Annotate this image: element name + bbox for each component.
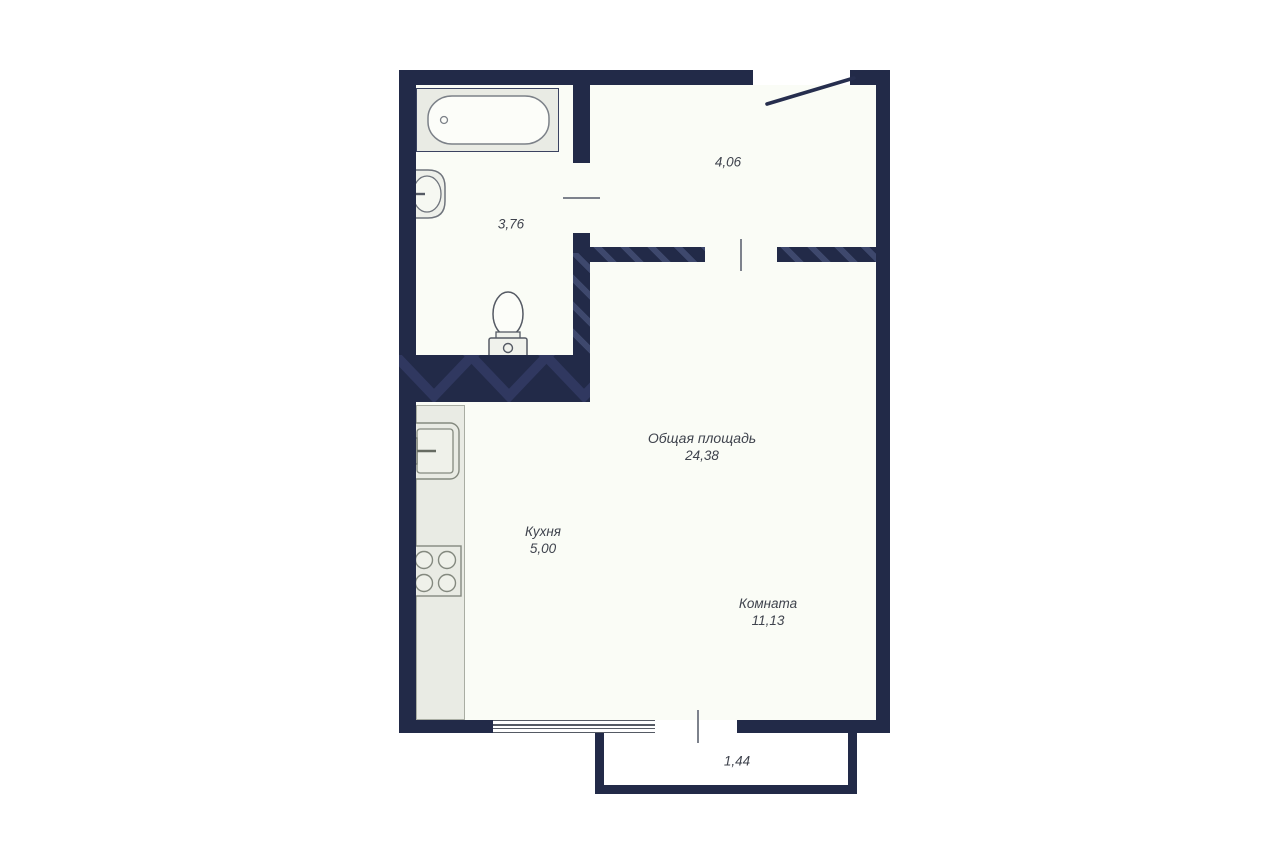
bathroom-door-tick bbox=[563, 197, 600, 199]
total-area-name: Общая площадь bbox=[648, 430, 756, 447]
wall-top bbox=[399, 70, 753, 85]
kitchen-label: Кухня 5,00 bbox=[525, 523, 561, 557]
living-room-area-value: 11,13 bbox=[739, 612, 797, 629]
hallway-area-label: 4,06 bbox=[715, 154, 741, 171]
total-area-value: 24,38 bbox=[648, 447, 756, 464]
wall-bathroom-upper bbox=[573, 85, 590, 163]
total-area-label: Общая площадь 24,38 bbox=[648, 430, 756, 464]
entrance-door-icon bbox=[749, 70, 869, 115]
bathtub-icon bbox=[416, 88, 559, 152]
hall-room-door-tick bbox=[740, 239, 742, 271]
living-room-name: Комната bbox=[739, 595, 797, 612]
kitchen-name: Кухня bbox=[525, 523, 561, 540]
wall-bathroom-mid bbox=[573, 233, 590, 253]
balcony-area-value: 1,44 bbox=[724, 754, 750, 769]
hallway-area-value: 4,06 bbox=[715, 155, 741, 170]
wall-chevron-block bbox=[399, 355, 590, 402]
bathroom-area-value: 3,76 bbox=[498, 217, 524, 232]
window-icon bbox=[493, 720, 655, 733]
wall-hallway-left-hatched bbox=[590, 247, 705, 262]
floor-plan: 3,76 4,06 Общая площадь 24,38 Кухня 5,00… bbox=[399, 70, 890, 794]
apartment-floor bbox=[416, 85, 878, 720]
wall-right bbox=[876, 70, 890, 733]
living-room-label: Комната 11,13 bbox=[739, 595, 797, 629]
kitchen-area-value: 5,00 bbox=[525, 540, 561, 557]
wall-hallway-right-hatched bbox=[777, 247, 876, 262]
balcony-door-opening bbox=[655, 720, 737, 733]
bathroom-area-label: 3,76 bbox=[498, 216, 524, 233]
wall-bathroom-lower-hatched bbox=[573, 253, 590, 355]
floor-plan-page: 3,76 4,06 Общая площадь 24,38 Кухня 5,00… bbox=[0, 0, 1280, 853]
wall-bottom-left bbox=[399, 720, 493, 733]
balcony-area-label: 1,44 bbox=[724, 753, 750, 770]
wall-bottom-right bbox=[737, 720, 890, 733]
balcony-wall-bottom bbox=[595, 785, 857, 794]
stove-icon bbox=[408, 545, 462, 597]
balcony-door-tick bbox=[697, 710, 699, 743]
toilet-icon bbox=[483, 288, 533, 362]
